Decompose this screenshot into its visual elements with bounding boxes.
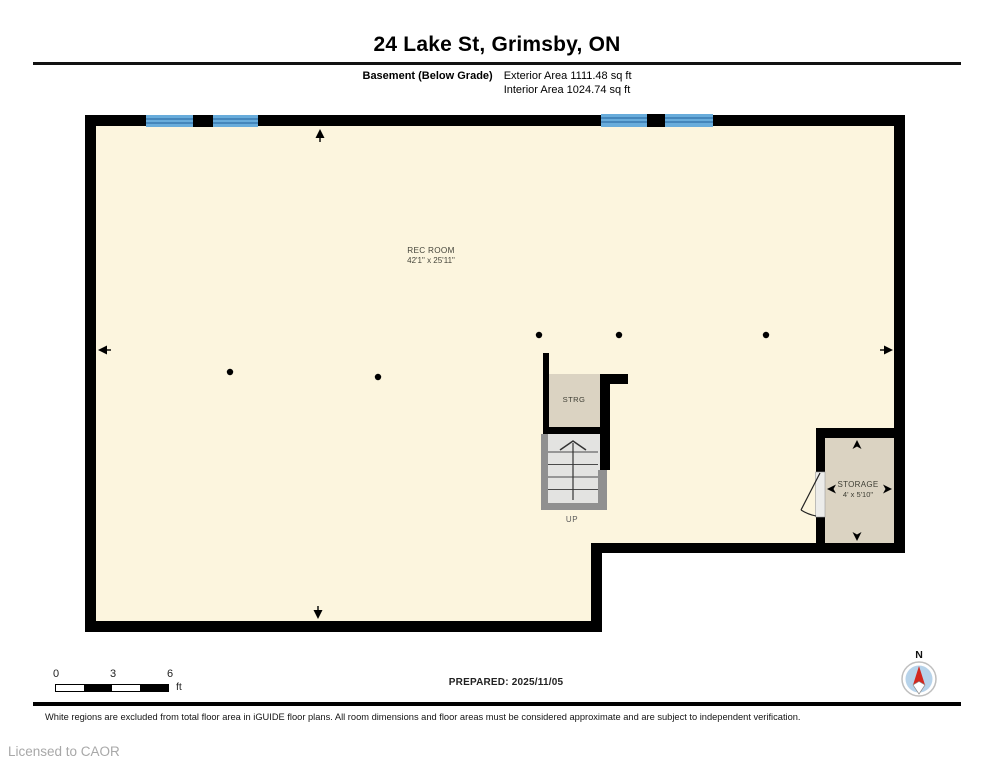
wall-bottom-left [85,621,602,632]
room-dims: 42'1" x 25'11" [407,256,455,265]
window-icon [146,115,193,127]
scale-bar: 0 3 6 ft [40,668,200,698]
scale-segment [84,685,112,691]
rec-room-label: REC ROOM 42'1" x 25'11" [407,246,455,265]
wall-step [591,543,602,632]
scale-segment [56,685,84,691]
window-mullion [193,115,213,127]
scale-tick-label: 3 [110,668,116,680]
post-dot [227,369,233,375]
scale-unit-label: ft [176,681,182,693]
post-dot [616,332,622,338]
scale-tick-label: 0 [53,668,59,680]
scale-segment [140,685,168,691]
scale-segment [112,685,140,691]
post-dot [536,332,542,338]
room-name: STORAGE [837,480,878,489]
window-icon [601,114,647,127]
wall-left [85,115,96,632]
window-mullion [647,114,665,127]
scale-tick-label: 6 [167,668,173,680]
compass-north-label: N [915,649,923,661]
room-name: STRG [563,395,586,404]
prepared-date: PREPARED: 2025/11/05 [449,677,563,688]
stairs-label: UP [566,515,578,524]
floor-plan-svg: REC ROOM 42'1" x 25'11" STRG [0,0,994,768]
wall-bottom-right [591,543,905,553]
compass: N [902,649,936,696]
scale-bar-segments [55,684,169,692]
post-dot [763,332,769,338]
window-icon [213,115,258,127]
footer-divider [33,702,961,706]
room-name: REC ROOM [407,246,454,255]
window-icon [665,114,713,127]
license-text: Licensed to CAOR [8,744,120,759]
disclaimer-text: White regions are excluded from total fl… [45,712,955,722]
post-dot [375,374,381,380]
room-dims: 4' x 5'10" [843,490,873,499]
floor-plan-page: 24 Lake St, Grimsby, ON Basement (Below … [0,0,994,768]
wall-right [894,115,905,553]
